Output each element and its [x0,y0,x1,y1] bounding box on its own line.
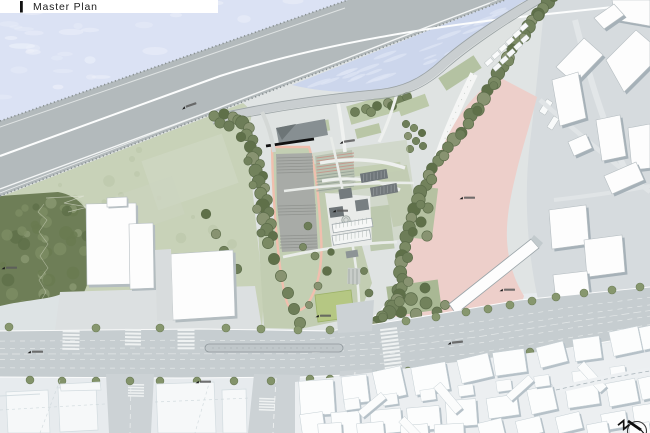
svg-text:Master Plan: Master Plan [33,1,98,13]
